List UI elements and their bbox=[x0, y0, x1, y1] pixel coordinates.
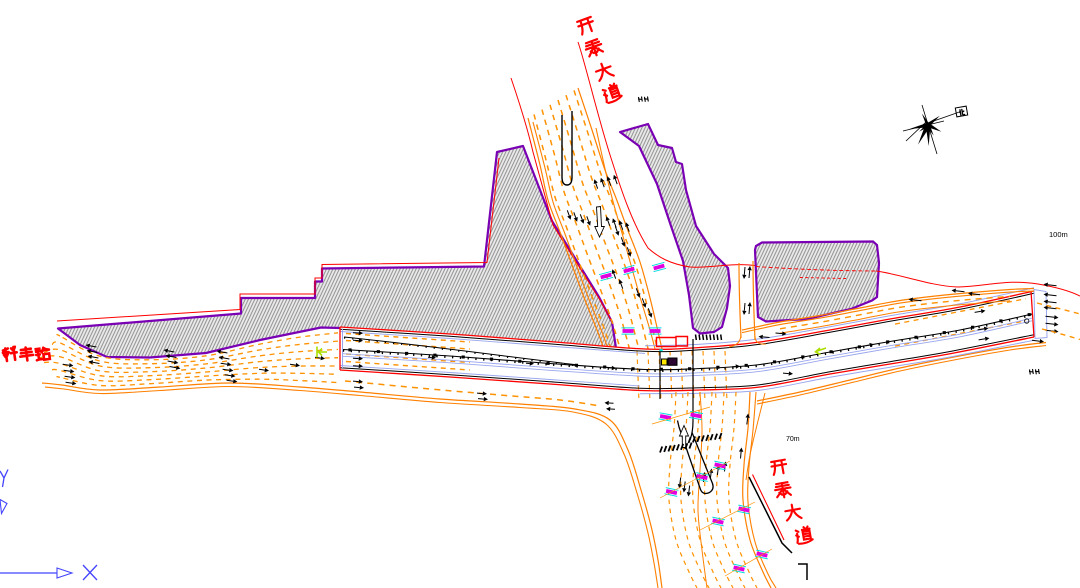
svg-text:70m: 70m bbox=[786, 436, 800, 443]
svg-text:100m: 100m bbox=[1049, 230, 1068, 239]
